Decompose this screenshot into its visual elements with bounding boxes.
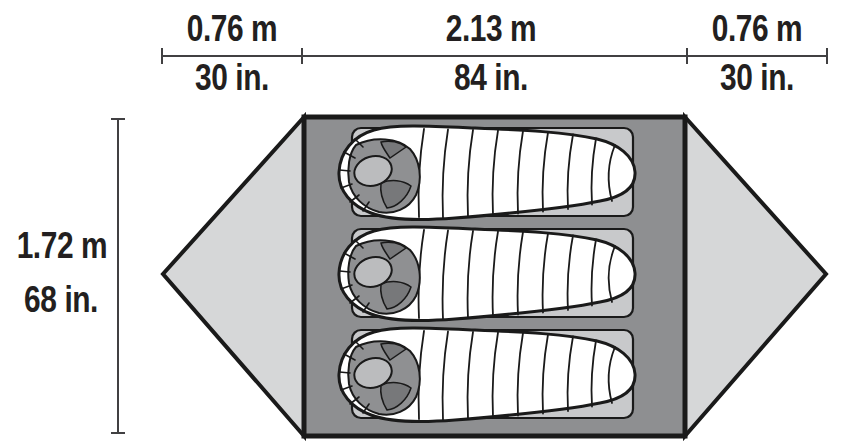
dim-label-tent-depth: 1.72 m 68 in. [17,219,98,327]
dim-label-floor-width-in: 84 in. [416,61,565,95]
dimension-line-left [111,119,125,433]
tent-dimensions-diagram: 0.76 m 2.13 m 0.76 m 30 in. 84 in. 30 in… [0,0,850,442]
dim-label-right-vestibule-in: 30 in. [682,61,831,95]
dim-label-floor-width-m: 2.13 m [416,12,565,46]
dim-label-left-vestibule-in: 30 in. [157,61,306,95]
left-vestibule [163,117,304,436]
dim-label-tent-depth-m: 1.72 m [17,219,98,273]
dim-label-tent-depth-in: 68 in. [17,273,98,327]
right-vestibule [685,117,826,436]
sleeper-3 [339,328,635,422]
sleeper-2 [339,227,635,321]
dim-label-right-vestibule-m: 0.76 m [682,12,831,46]
dim-label-left-vestibule-m: 0.76 m [157,12,306,46]
sleeper-1 [339,126,635,220]
